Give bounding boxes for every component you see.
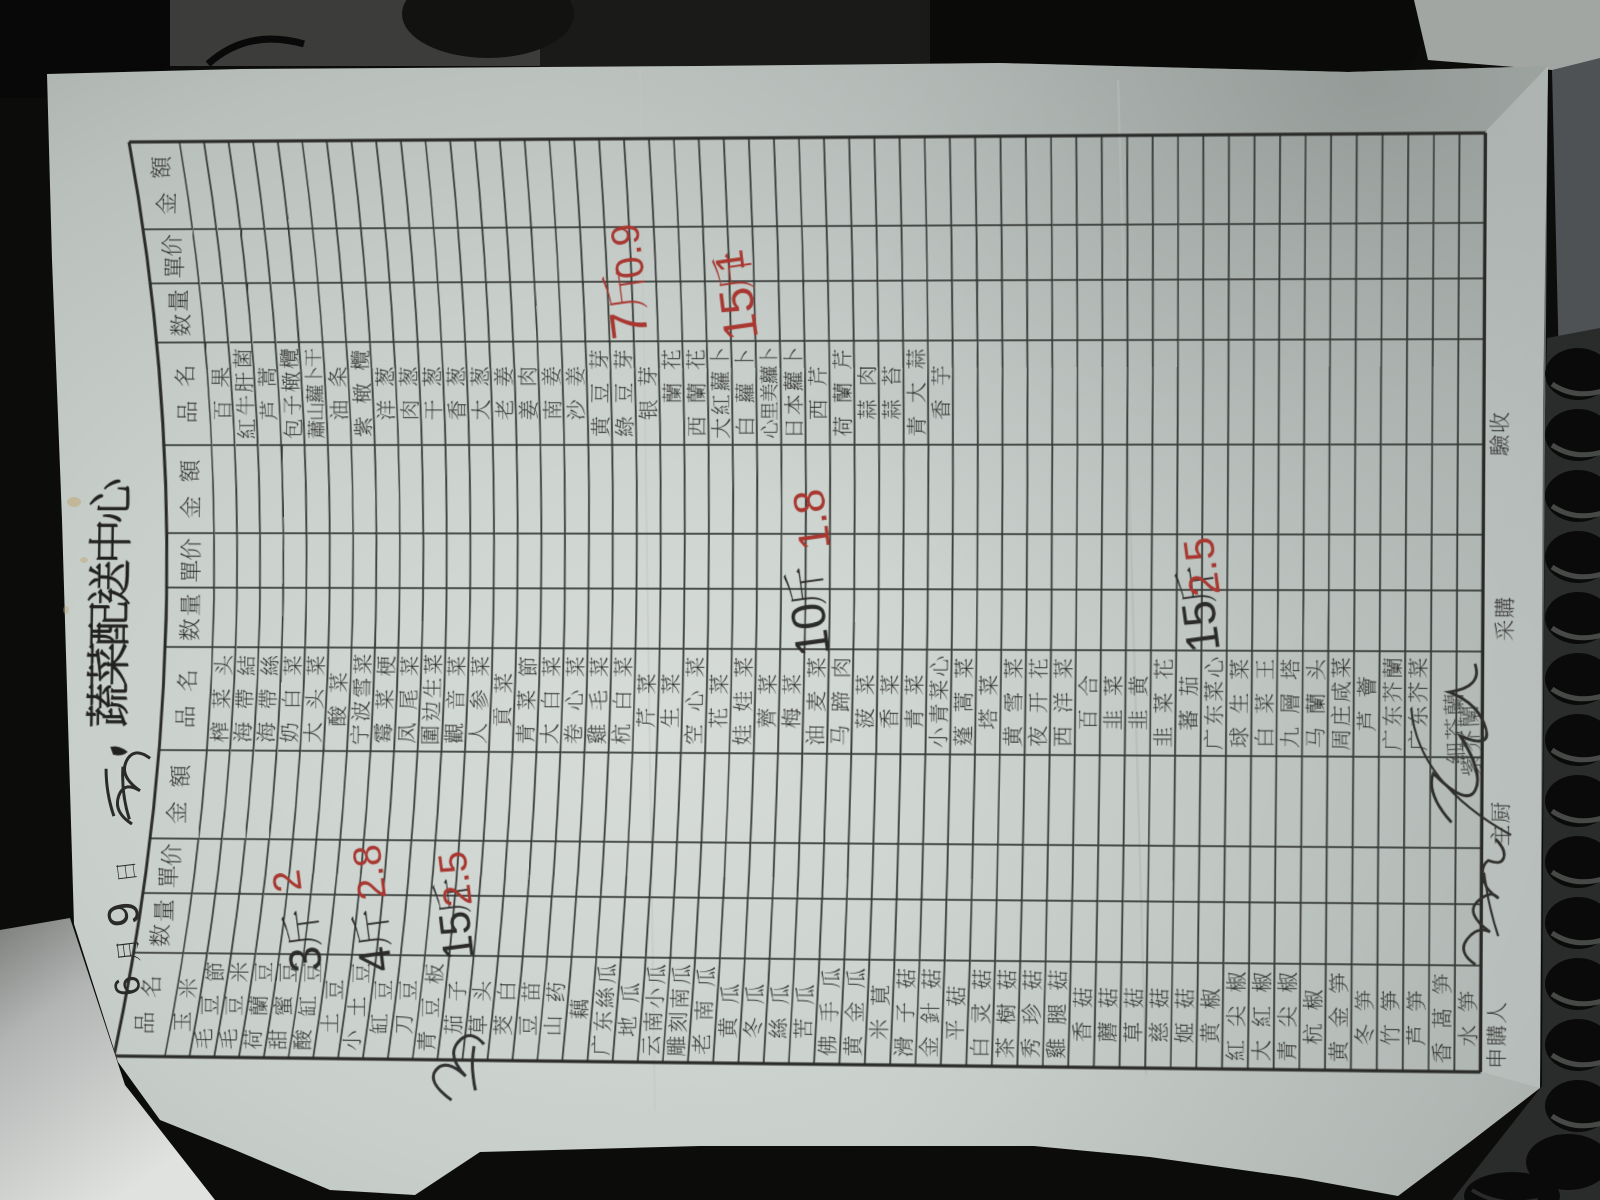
svg-text:9: 9 xyxy=(98,898,150,930)
svg-text:6: 6 xyxy=(105,973,149,999)
